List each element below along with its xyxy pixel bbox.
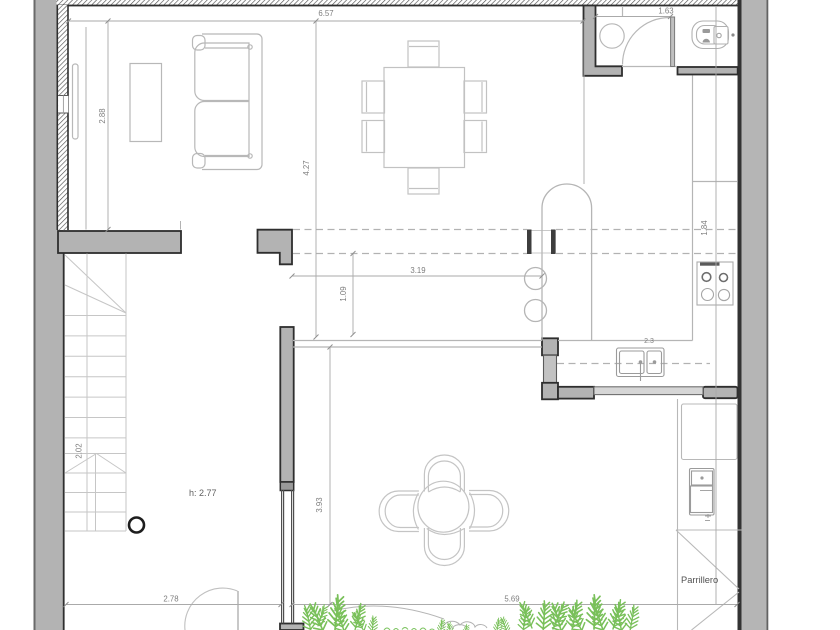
svg-text:3.19: 3.19 [410,266,425,275]
svg-text:6.57: 6.57 [318,9,333,18]
svg-text:2.88: 2.88 [98,108,107,123]
svg-text:5.69: 5.69 [504,595,519,604]
svg-text:1.84: 1.84 [700,220,709,236]
svg-text:2.78: 2.78 [163,595,178,604]
svg-text:h: 2.77: h: 2.77 [189,488,217,498]
svg-text:1.63: 1.63 [658,7,673,16]
svg-text:2.02: 2.02 [75,443,84,458]
svg-text:Parrillero: Parrillero [681,575,718,585]
svg-text:1.09: 1.09 [339,286,348,301]
svg-text:4.27: 4.27 [302,160,311,175]
svg-text:2.3: 2.3 [644,338,654,345]
svg-text:3.93: 3.93 [315,497,324,512]
